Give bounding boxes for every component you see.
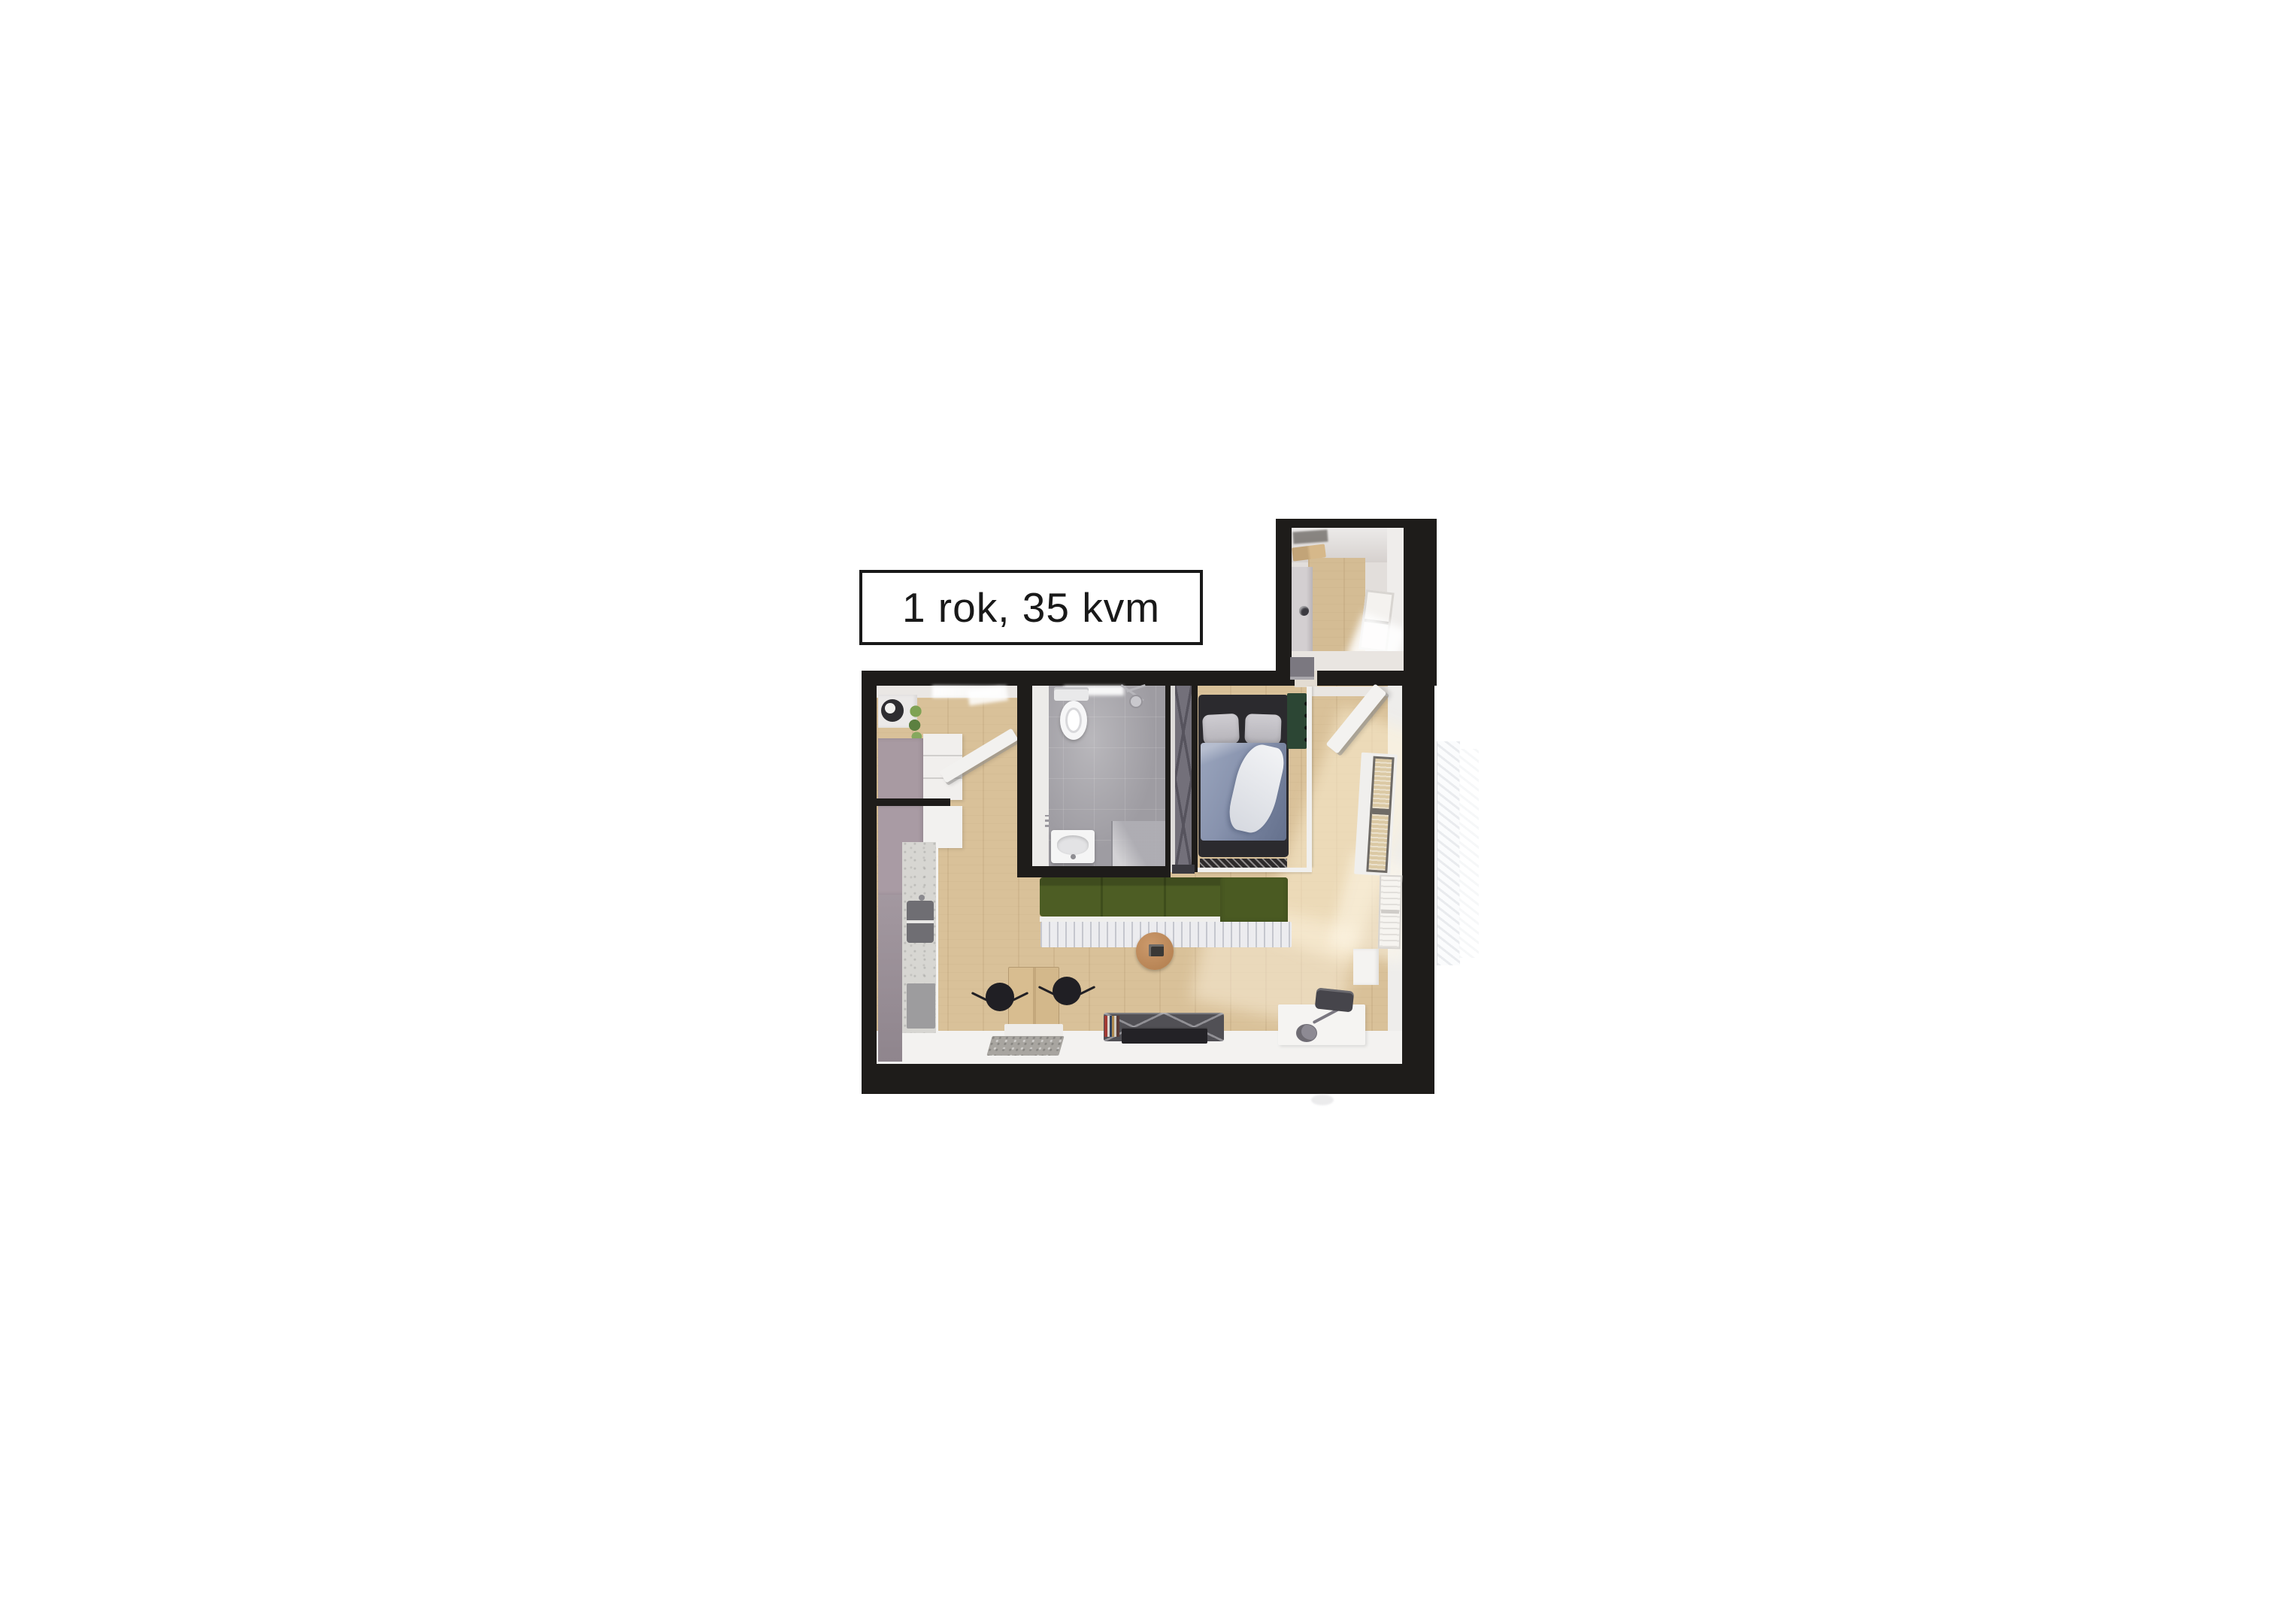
toilet-tank [1054,687,1089,701]
toilet-bowl-inner [1065,707,1082,733]
sliding-door-foot [1172,865,1195,874]
kitchen-side-panel [878,895,902,1062]
floor-plant-large [1204,976,1278,1050]
window-a-pane-bottom [1368,814,1388,871]
sofa-base [1040,917,1220,922]
shower-head [1129,695,1143,708]
plan-title-box: 1 rok, 35 kvm [859,570,1203,645]
kitchen-faucet [919,895,925,901]
hallway-wall-stub [862,798,950,806]
bed-pillow-right [1244,714,1281,745]
railing-hatch-faint [1459,749,1479,958]
kitchen-sink-divider [907,920,934,923]
kitchen-appliance [907,983,935,1029]
railing-hatch [1437,741,1460,965]
washbasin-faucet [1071,854,1076,859]
entry-mirror-highlight [885,703,895,714]
glass-partition-horizontal [1198,868,1312,872]
sliding-door-wall [1192,686,1198,872]
window-a-pane-top [1372,759,1392,809]
balcony-hanging-items [1292,529,1328,544]
page-canvas: 1 rok, 35 kvm [0,0,2296,1624]
bed-pillow-left [1202,714,1240,745]
dining-chair-right [1053,977,1081,1005]
dining-chair-left [986,983,1014,1011]
sofa-chaise [1220,877,1288,927]
dining-table-base [1004,1024,1063,1036]
tv [1122,1027,1207,1044]
dining-mat [986,1036,1064,1056]
bathroom-wall-band [1032,686,1049,866]
plan-title-label: 1 rok, 35 kvm [902,583,1160,632]
bathroom-taps [1045,815,1049,827]
tv-bench-books [1104,1016,1119,1037]
shower-screen [1111,821,1165,866]
window-a [1354,753,1398,877]
sliding-door [1175,686,1192,872]
stool [1315,987,1355,1012]
glass-partition-vertical [1307,686,1312,868]
hallway-wardrobe [878,738,925,801]
washbasin-bowl [1057,835,1089,855]
window-b-mullion [1381,910,1399,914]
exterior-shadow-mark [1311,1095,1334,1105]
balcony-interior [1292,528,1404,671]
coffee-table-tray [1149,944,1164,956]
balcony-cabinet-knob [1299,606,1309,616]
balcony-door-leaf [1290,657,1314,680]
